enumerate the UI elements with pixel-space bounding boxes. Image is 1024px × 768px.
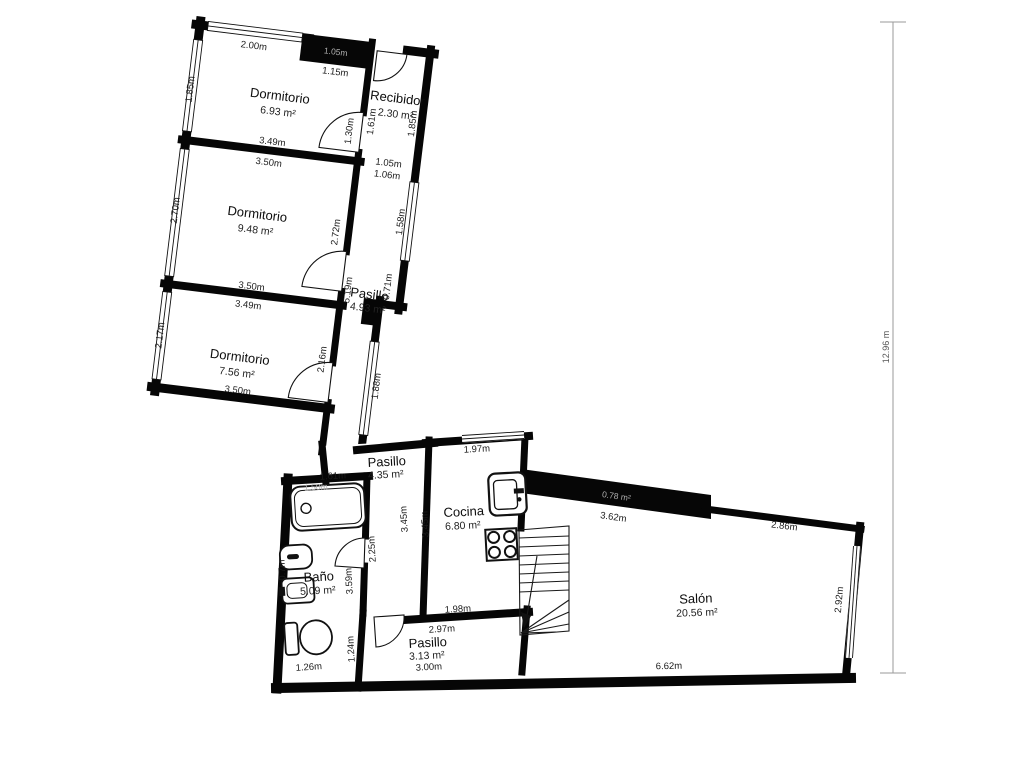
dim-cocina-bottom: 1.98m xyxy=(444,603,471,615)
room-bano-name: Baño xyxy=(303,568,334,585)
dim-salon-right-window: 2.92m xyxy=(833,586,846,613)
upper-wing: 2.00m 1.05m 1.15m Dormitorio 6.93 m² 1.8… xyxy=(143,20,435,462)
stove-icon xyxy=(485,528,518,561)
dim-pasillo3-bottom: 3.00m xyxy=(415,661,442,673)
room-pasillo2-area: 4.35 m² xyxy=(368,468,405,482)
room-salon-area: 20.56 m² xyxy=(676,606,718,619)
ruler-total-height: 12.96 m xyxy=(881,331,891,364)
dim-cocina-top-window: 1.97m xyxy=(463,443,490,455)
dim-bano-top-white: 1.50m xyxy=(304,481,328,492)
room-salon-name: Salón xyxy=(679,590,713,606)
room-cocina-area: 6.80 m² xyxy=(445,519,482,533)
dim-bano-left: 0.7m xyxy=(276,559,288,581)
room-cocina-name: Cocina xyxy=(443,503,485,520)
floorplan-page: 2.00m 1.05m 1.15m Dormitorio 6.93 m² 1.8… xyxy=(0,0,1024,768)
toilet-icon xyxy=(284,619,333,656)
room-bano-area: 5.09 m² xyxy=(300,584,337,598)
height-ruler: 12.96 m xyxy=(880,22,906,673)
bathtub-icon xyxy=(290,483,367,531)
dim-bano-right: 3.59m xyxy=(343,568,355,595)
dim-corridor-lower: 1.24m xyxy=(345,636,357,663)
kitchen-sink-icon xyxy=(488,472,527,516)
lower-wing: 1.61m Pasillo 4.35 m² 1.50m 2.25m 3.45m … xyxy=(276,432,861,690)
dim-salon-bottom: 6.62m xyxy=(656,661,683,672)
dim-cocina-wall-east: 3.45m xyxy=(419,511,431,538)
dim-cocina-wall-west: 3.45m xyxy=(398,506,410,533)
dim-bano-bottom: 1.26m xyxy=(295,661,322,674)
dim-corridor: 2.25m xyxy=(366,536,378,563)
floorplan-canvas: 2.00m 1.05m 1.15m Dormitorio 6.93 m² 1.8… xyxy=(0,0,1024,768)
